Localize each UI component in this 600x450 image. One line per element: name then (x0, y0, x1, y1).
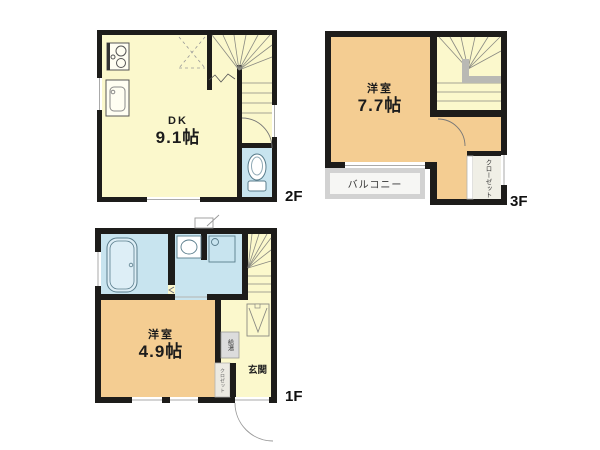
bathtub-icon (107, 238, 137, 292)
floorplan-2f: DK 9.1帖 (97, 30, 277, 202)
floor-tag-2f: 2F (285, 188, 303, 205)
interior-wall (237, 65, 242, 197)
entrance-door-arc-icon (235, 403, 273, 441)
washbasin-icon (177, 236, 201, 258)
interior-wall (168, 234, 175, 285)
room-size: 7.7帖 (330, 96, 430, 116)
room-name: 洋室 (330, 83, 430, 96)
room-label-3f: 洋室 7.7帖 (330, 83, 430, 117)
floorplan-page: { "colors": { "wall": "#1d1c1a", "room_y… (0, 0, 600, 450)
balcony-label: バルコニー (330, 176, 420, 191)
room-name: 洋室 (111, 329, 211, 342)
interior-wall (437, 110, 501, 117)
kitchen-sink-icon (106, 80, 129, 116)
floor-tag-3f: 3F (510, 193, 528, 210)
interior-wall (242, 143, 272, 148)
room-size: 4.9帖 (111, 342, 211, 362)
water-heater-label: 給湯 (221, 332, 239, 358)
interior-wall (207, 35, 212, 90)
stove-icon (107, 43, 129, 70)
floor-tag-1f: 1F (285, 388, 303, 405)
interior-wall (242, 234, 248, 300)
floorplan-3f: 洋室 7.7帖 バルコニー クローゼット (325, 31, 507, 205)
interior-wall (430, 31, 437, 117)
room-label-1f: 洋室 4.9帖 (111, 329, 211, 363)
interior-wall (230, 363, 236, 397)
closet-door (467, 156, 473, 199)
floorplan-1f-drawing (95, 213, 277, 443)
vent-pipe-icon (195, 215, 219, 228)
interior-wall (467, 151, 501, 156)
room-size: 9.1帖 (128, 128, 228, 148)
interior-wall (101, 294, 175, 300)
stair-handrail (462, 76, 501, 83)
room-label-2f: DK 9.1帖 (128, 115, 228, 149)
floorplan-1f: 洋室 4.9帖 玄関 給湯 クロゼット (95, 228, 277, 403)
toilet-icon (248, 154, 266, 191)
interior-wall (207, 294, 242, 300)
closet-label: クロゼット (215, 364, 230, 396)
closet-label: クローゼット (474, 158, 500, 198)
entrance-label: 玄関 (240, 362, 275, 376)
room-name: DK (128, 115, 228, 128)
interior-wall (201, 234, 207, 260)
